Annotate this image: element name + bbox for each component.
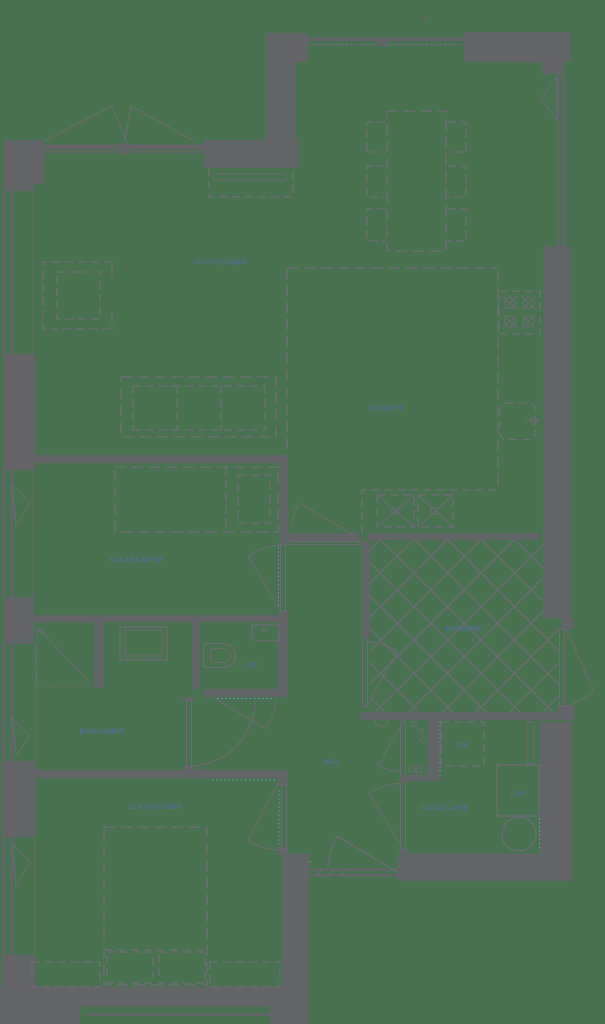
svg-text:INSTALLATIE: INSTALLATIE xyxy=(418,803,468,812)
svg-text:WOONKAMER: WOONKAMER xyxy=(193,258,247,267)
svg-text:KEUKEN: KEUKEN xyxy=(369,404,402,413)
svg-text:BERGING: BERGING xyxy=(445,624,481,633)
svg-text:BADKAMER: BADKAMER xyxy=(79,727,125,736)
svg-text:WC: WC xyxy=(246,661,259,670)
svg-text:SLAAPKAMER: SLAAPKAMER xyxy=(128,802,183,811)
svg-text:SLAAPKAMER: SLAAPKAMER xyxy=(109,555,164,564)
svg-text:WM: WM xyxy=(456,742,468,749)
svg-text:HAL: HAL xyxy=(324,757,340,766)
svg-text:LWP: LWP xyxy=(511,791,526,798)
